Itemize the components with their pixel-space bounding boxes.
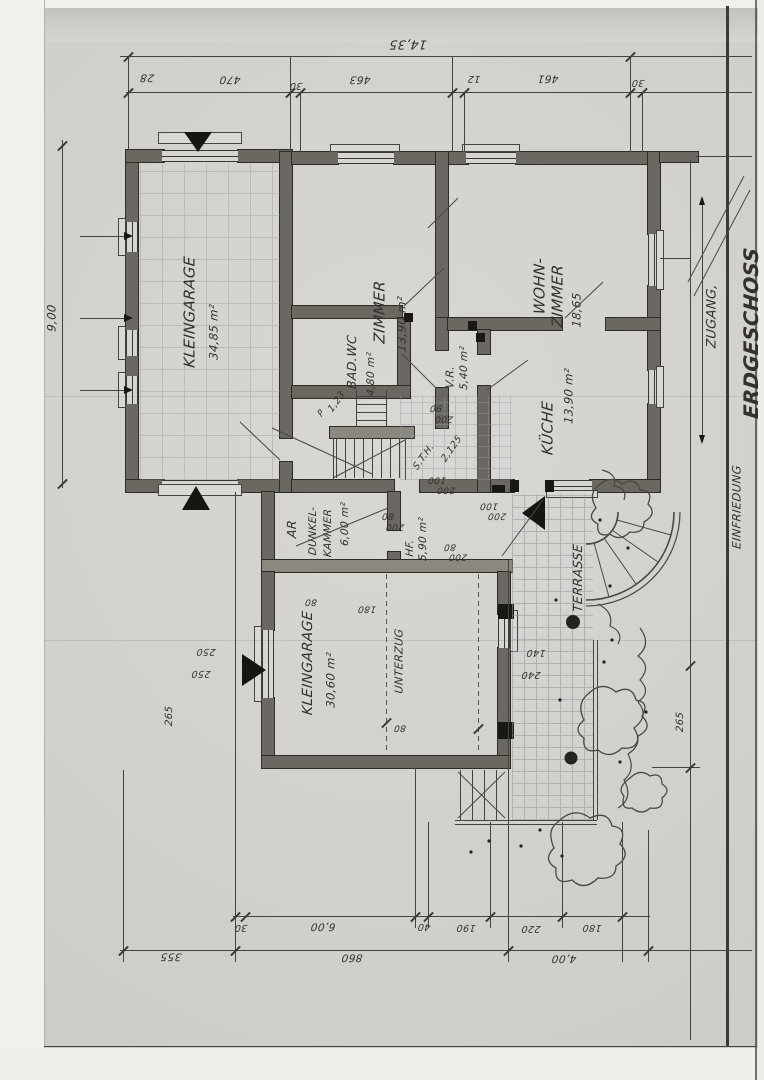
linework-49 [272, 428, 372, 474]
linework-38 [602, 470, 625, 500]
linework-20 [487, 839, 490, 842]
floor-plan-drawing: KLEINGARAGE34,85 m²ZIMMER13,90 m²WOHN-ZI… [0, 0, 764, 1080]
sheet-title: ERDGESCHOSS [741, 246, 761, 419]
linework-18 [538, 828, 541, 831]
linework-14 [610, 638, 613, 641]
linework-12 [626, 546, 629, 549]
linework-36 [618, 628, 646, 808]
linework-7 [699, 196, 705, 205]
linework-40 [565, 282, 603, 318]
linework-41 [487, 360, 528, 390]
linework-15 [602, 660, 605, 663]
linework-29 [612, 530, 658, 562]
linework-0 [184, 132, 212, 152]
linework-31 [594, 543, 609, 597]
linework-44 [296, 508, 388, 546]
linework-17 [618, 760, 621, 763]
linework-30 [604, 538, 636, 584]
linework-37 [598, 604, 620, 644]
linework-25 [586, 512, 618, 544]
linework-4 [124, 232, 133, 240]
linework-11 [598, 518, 601, 521]
linework-13 [554, 598, 557, 601]
linework-8 [699, 435, 705, 444]
linework-19 [560, 854, 563, 857]
linework-5 [124, 314, 133, 322]
linework-46 [428, 198, 458, 228]
linework-2 [242, 654, 266, 686]
linework-39 [404, 268, 444, 306]
linework-43 [240, 422, 280, 460]
linework-27 [586, 512, 680, 606]
linework-10 [565, 752, 578, 765]
linework-45 [502, 500, 543, 556]
scanned-floor-plan-sheet: KLEINGARAGE34,85 m²ZIMMER13,90 m²WOHN-ZI… [0, 0, 764, 1080]
linework-47 [688, 176, 744, 282]
linework-22 [519, 844, 522, 847]
boundary-label: EINFRIEDUNG [731, 465, 743, 550]
linework-26 [586, 512, 674, 600]
linework-6 [124, 386, 133, 394]
linework-1 [182, 486, 210, 510]
linework-21 [469, 850, 472, 853]
linework-23 [608, 584, 611, 587]
linework-42 [402, 354, 436, 388]
linework-16 [558, 698, 561, 701]
linework-34 [548, 813, 625, 886]
plan-linework [0, 0, 764, 1080]
linework-9 [566, 615, 580, 629]
access-label: ZUGANG, [706, 283, 719, 348]
